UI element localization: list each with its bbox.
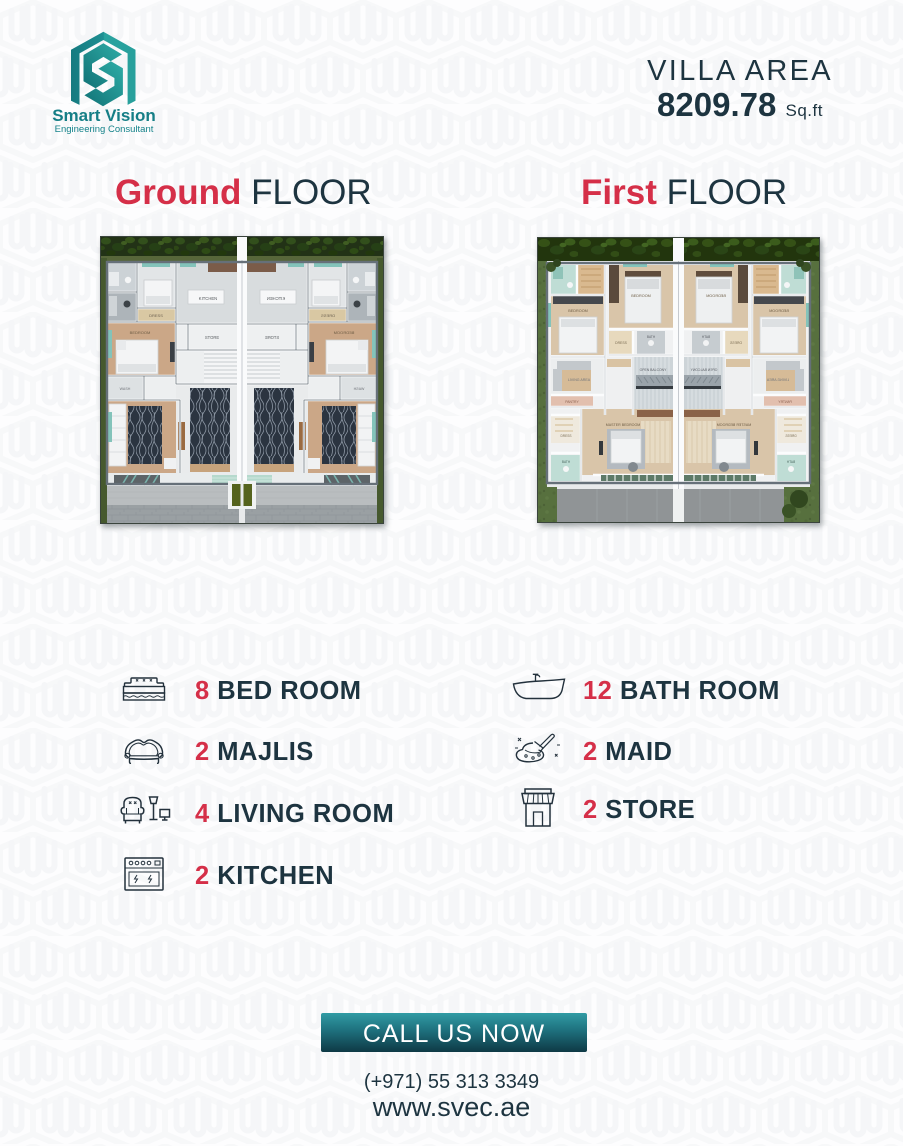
svg-text:BATH: BATH bbox=[647, 335, 656, 339]
svg-text:BEDROOM: BEDROOM bbox=[130, 330, 151, 335]
svg-text:BEDROOM: BEDROOM bbox=[631, 294, 651, 298]
svg-text:WASH: WASH bbox=[120, 387, 131, 391]
svg-text:BATH: BATH bbox=[562, 460, 571, 464]
svg-text:STORE: STORE bbox=[205, 335, 220, 340]
svg-text:DRESS: DRESS bbox=[615, 341, 627, 345]
svg-text:DRESS: DRESS bbox=[149, 313, 163, 318]
svg-text:LIVING AREA: LIVING AREA bbox=[568, 378, 591, 382]
svg-text:MASTER BEDROOM: MASTER BEDROOM bbox=[606, 423, 641, 427]
svg-text:BEDROOM: BEDROOM bbox=[568, 309, 588, 313]
svg-text:PANTRY: PANTRY bbox=[565, 400, 579, 404]
svg-text:KITCHEN: KITCHEN bbox=[199, 296, 217, 301]
svg-text:DRESS: DRESS bbox=[561, 434, 572, 438]
svg-text:OPEN BALCONY: OPEN BALCONY bbox=[640, 368, 667, 372]
